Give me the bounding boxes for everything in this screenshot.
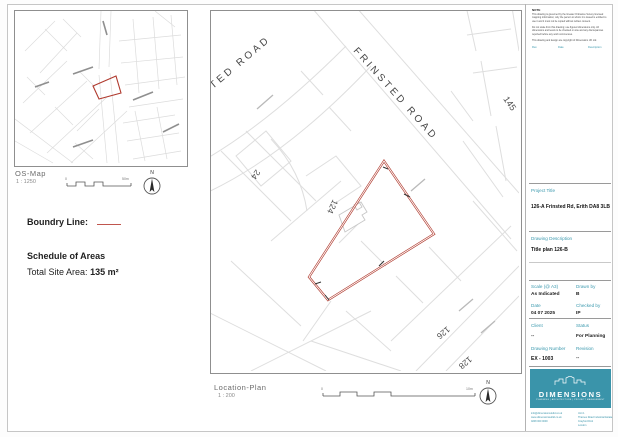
drawn-by-label: Drawn by bbox=[576, 284, 595, 289]
scale-field-label: Scale (@ A3) bbox=[531, 284, 558, 289]
location-plan-scalebar: 0 10m bbox=[320, 385, 478, 404]
drawing-number-value: EX - 1003 bbox=[531, 356, 553, 362]
boundary-line-sample bbox=[97, 224, 121, 225]
status-label: Status bbox=[576, 323, 589, 328]
drawn-by-value: B bbox=[576, 292, 579, 297]
plot-number-24: 24 bbox=[249, 168, 263, 182]
revision-header-rev: Rev bbox=[532, 46, 537, 49]
road-label-frinsted: FRINSTED ROAD bbox=[351, 46, 440, 143]
os-scalebar-end: 50m bbox=[122, 177, 129, 181]
checked-by-value: IP bbox=[576, 311, 581, 316]
buildings-icon bbox=[554, 376, 588, 385]
status-value: For Planning bbox=[576, 334, 605, 339]
title-block-divider bbox=[525, 4, 526, 431]
os-map-site-boundary bbox=[93, 76, 121, 99]
loc-north-label: N bbox=[486, 380, 490, 386]
plot-number-124: 124 bbox=[325, 198, 340, 215]
company-logo-block: DIMENSIONS PLANNING | ARCHITECTURE | PRO… bbox=[530, 369, 611, 408]
contact-line: London bbox=[578, 424, 612, 428]
client-label: Client bbox=[531, 323, 543, 328]
loc-scalebar-end: 10m bbox=[466, 387, 473, 391]
note-line: This drawing and design are copyright of… bbox=[532, 39, 610, 42]
drawing-description-value: Title plan 126-B bbox=[531, 247, 568, 253]
os-north-label: N bbox=[150, 170, 154, 176]
site-building-outline bbox=[339, 202, 367, 232]
separator bbox=[529, 231, 611, 232]
date-label: Date bbox=[531, 303, 541, 308]
total-site-area-value: 135 m² bbox=[90, 267, 119, 277]
os-map-frame bbox=[14, 10, 188, 167]
notes-heading: NOTE bbox=[532, 8, 540, 12]
contact-details-right: Unit 1 Thames Road Industrial Estate Cra… bbox=[578, 412, 612, 428]
revision-value: -- bbox=[576, 356, 579, 361]
project-title-label: Project Title bbox=[531, 188, 555, 193]
note-line: This drawing is governed by the Greater … bbox=[532, 13, 610, 23]
site-boundary bbox=[309, 161, 434, 300]
revision-label: Revision bbox=[576, 346, 594, 351]
location-plan-drawing: FRINSTED ROAD TED ROAD 145 24 124 126 12… bbox=[211, 11, 519, 371]
os-map-scale: 1 : 1250 bbox=[16, 179, 36, 185]
separator bbox=[529, 183, 611, 184]
drawing-description-label: Drawing Description bbox=[531, 236, 572, 241]
checked-by-label: Checked by bbox=[576, 303, 600, 308]
revision-header-date: Date bbox=[558, 46, 564, 49]
contact-line: 0208 000 0000 bbox=[531, 420, 562, 424]
revision-header-description: Description bbox=[588, 46, 601, 49]
boundary-line-label: Boundry Line: bbox=[27, 217, 88, 227]
company-name: DIMENSIONS bbox=[530, 390, 611, 399]
location-plan-north-arrow: N bbox=[477, 378, 499, 413]
client-value: -- bbox=[531, 334, 534, 339]
company-tagline: PLANNING | ARCHITECTURE | PROJECT MANAGE… bbox=[530, 399, 611, 401]
note-line: Do not scale from this drawing; use figu… bbox=[532, 26, 610, 36]
road-label-partial: TED ROAD bbox=[211, 34, 273, 91]
date-value: 04 07 2025 bbox=[531, 311, 555, 316]
separator bbox=[529, 262, 611, 263]
scale-field-value: As Indicated bbox=[531, 292, 560, 297]
schedule-of-areas-title: Schedule of Areas bbox=[27, 251, 105, 261]
plot-number-145: 145 bbox=[501, 94, 518, 112]
notes-text: This drawing is governed by the Greater … bbox=[532, 13, 610, 45]
contact-details-left: info@dimensionsukltd.co.uk www.dimension… bbox=[531, 412, 562, 424]
location-plan-scale: 1 : 200 bbox=[218, 393, 235, 399]
plot-number-126: 126 bbox=[435, 324, 453, 341]
os-map-scalebar: 0 50m bbox=[64, 175, 134, 194]
total-site-area-label: Total Site Area: bbox=[27, 267, 88, 277]
separator bbox=[529, 280, 611, 281]
drawing-number-label: Drawing Number bbox=[531, 346, 565, 351]
location-plan-title: Location-Plan bbox=[214, 383, 266, 392]
location-plan-frame: FRINSTED ROAD TED ROAD 145 24 124 126 12… bbox=[210, 10, 522, 374]
os-scalebar-zero: 0 bbox=[65, 177, 67, 181]
loc-scalebar-zero: 0 bbox=[321, 387, 323, 391]
separator bbox=[529, 366, 611, 367]
project-title-value: 126-A Frinsted Rd, Erith DA8 3LB bbox=[531, 204, 611, 210]
separator bbox=[529, 318, 611, 319]
os-map-title: OS-Map bbox=[15, 169, 46, 178]
total-site-area: Total Site Area: 135 m² bbox=[27, 267, 119, 277]
os-map-drawing bbox=[15, 11, 185, 164]
os-map-north-arrow: N bbox=[141, 168, 163, 203]
